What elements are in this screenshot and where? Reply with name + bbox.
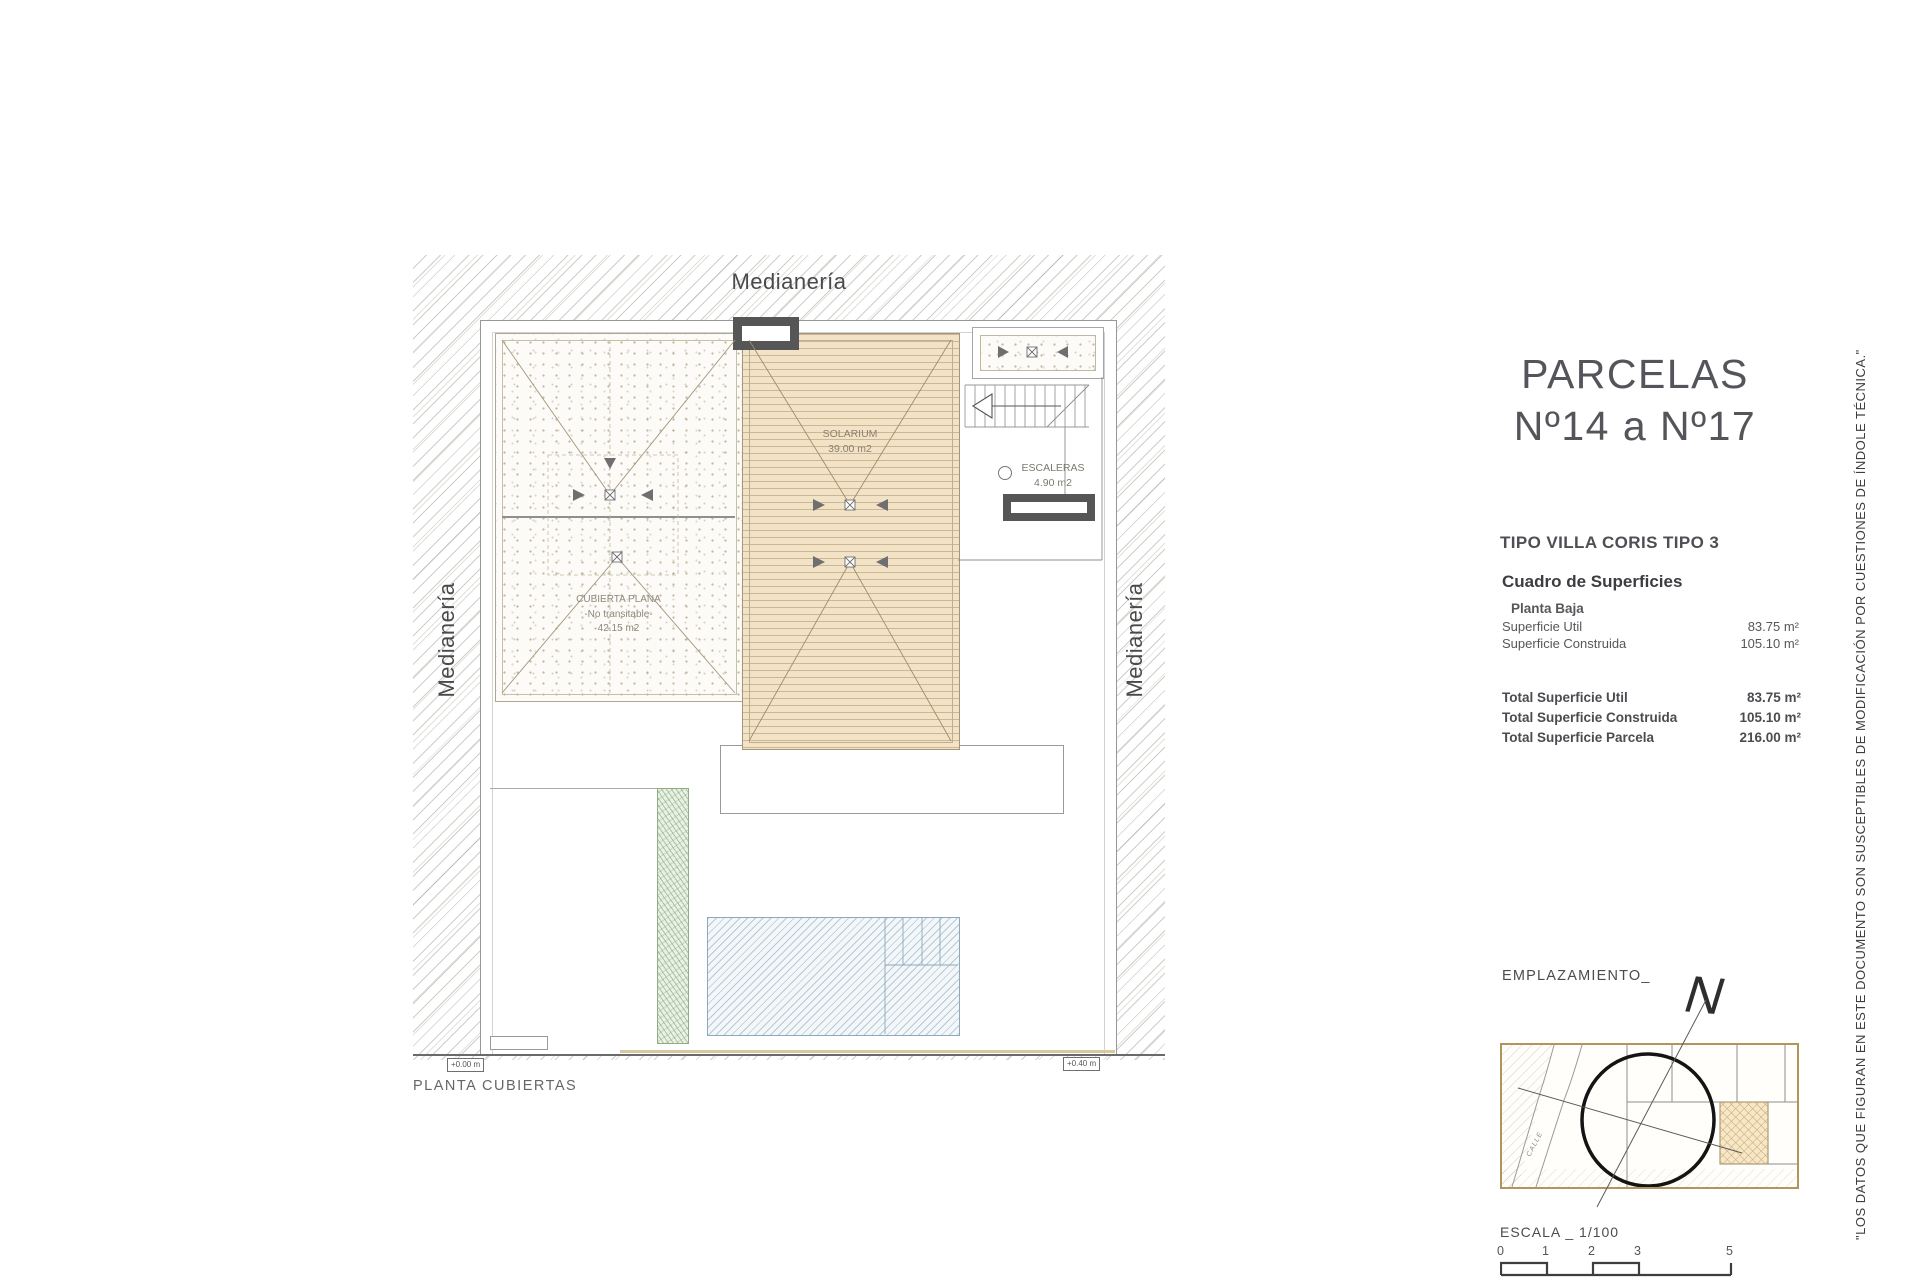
surface-table-title: Cuadro de Superficies	[1502, 572, 1682, 592]
solarium-slope-lines	[749, 340, 951, 741]
scale-tick: 5	[1726, 1244, 1733, 1258]
plan-annotations	[413, 255, 1165, 1070]
planta-baja-label: Planta Baja	[1502, 601, 1799, 616]
scale-bar-ruler	[1500, 1260, 1740, 1278]
cubierta-name: CUBIERTA PLANA	[495, 593, 742, 608]
drain-icon	[605, 490, 622, 562]
scale-tick: 0	[1497, 1244, 1504, 1258]
villa-type-label: TIPO VILLA CORIS TIPO 3	[1500, 533, 1719, 553]
surface-value: 105.10 m²	[1740, 635, 1799, 652]
sheet-title: PARCELAS Nº14 a Nº17	[1470, 348, 1800, 452]
surface-table: Planta Baja Superficie Util 83.75 m² Sup…	[1502, 601, 1799, 652]
surface-value: 83.75 m²	[1748, 618, 1799, 635]
legal-disclaimer: "LOS DATOS QUE FIGURAN EN ESTE DOCUMENTO…	[1853, 349, 1868, 1240]
table-row: Total Superficie Construida 105.10 m²	[1502, 708, 1801, 728]
drain-icon	[1027, 347, 1037, 357]
scale-tick: 3	[1634, 1244, 1641, 1258]
plan-caption: PLANTA CUBIERTAS	[413, 1078, 577, 1094]
medianeria-label-right: Medianería	[1122, 582, 1148, 697]
north-reference-lines	[1480, 955, 1830, 1225]
cubierta-area: 42.15 m2	[495, 622, 742, 637]
title-line-1: PARCELAS	[1470, 348, 1800, 400]
solarium-label: SOLARIUM 39.00 m2	[742, 427, 958, 457]
level-marker: +0.00 m	[447, 1058, 484, 1072]
total-label: Total Superficie Construida	[1502, 708, 1677, 728]
table-row: Total Superficie Parcela 216.00 m²	[1502, 728, 1801, 748]
medianeria-label-left: Medianería	[434, 582, 460, 697]
drain-icon	[845, 500, 855, 567]
total-value: 83.75 m²	[1747, 688, 1801, 708]
medianeria-label-top: Medianería	[413, 269, 1165, 295]
surface-totals: Total Superficie Util 83.75 m² Total Sup…	[1502, 688, 1801, 748]
cubierta-subtitle: -No transitable-	[495, 608, 742, 623]
scale-tick: 1	[1542, 1244, 1549, 1258]
cubierta-plana-label: CUBIERTA PLANA -No transitable- 42.15 m2	[495, 593, 742, 637]
scale-bar: 0 1 2 3 5	[1500, 1244, 1750, 1278]
stair-direction-arrow	[973, 394, 1061, 418]
table-row: Superficie Util 83.75 m²	[1502, 618, 1799, 635]
surface-label: Superficie Construida	[1502, 635, 1626, 652]
plot-front-edge	[620, 1050, 1115, 1053]
table-row: Total Superficie Util 83.75 m²	[1502, 688, 1801, 708]
scale-tick: 2	[1588, 1244, 1595, 1258]
title-line-2: Nº14 a Nº17	[1470, 400, 1800, 452]
total-value: 105.10 m²	[1739, 708, 1801, 728]
roof-plan: +0.00 m +0.40 m Medianería Medianería Me…	[413, 255, 1165, 1070]
scale-label: ESCALA _ 1/100	[1500, 1224, 1619, 1240]
total-label: Total Superficie Parcela	[1502, 728, 1654, 748]
ground-line	[413, 1054, 1165, 1056]
level-marker: +0.40 m	[1063, 1057, 1100, 1071]
plan-sheet: +0.00 m +0.40 m Medianería Medianería Me…	[0, 0, 1920, 1280]
solarium-name: SOLARIUM	[742, 427, 958, 442]
pool-steps-lines	[885, 917, 958, 1034]
total-value: 216.00 m²	[1739, 728, 1801, 748]
table-row: Superficie Construida 105.10 m²	[1502, 635, 1799, 652]
total-label: Total Superficie Util	[1502, 688, 1628, 708]
surface-label: Superficie Util	[1502, 618, 1582, 635]
column-icon	[998, 466, 1012, 480]
solarium-area: 39.00 m2	[742, 442, 958, 457]
